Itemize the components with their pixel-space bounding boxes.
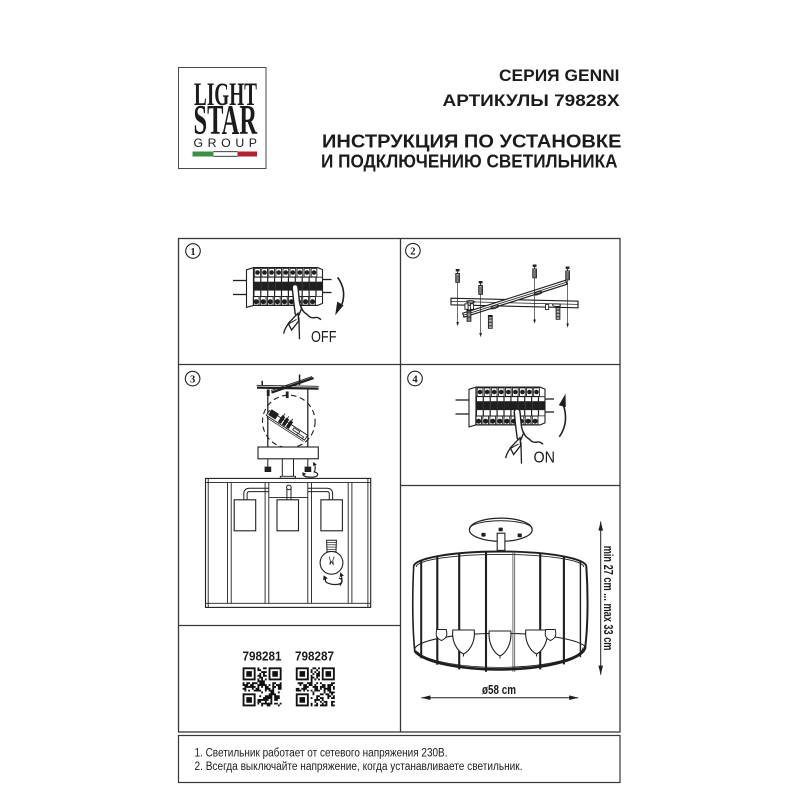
svg-text:СЕРИЯ GENNI: СЕРИЯ GENNI	[499, 66, 620, 85]
svg-text:OFF: OFF	[311, 329, 337, 346]
svg-text:ON: ON	[534, 450, 556, 467]
svg-text:1: 1	[190, 247, 195, 258]
svg-text:798281: 798281	[243, 648, 282, 663]
svg-text:min 27 cm ... max 33 cm: min 27 cm ... max 33 cm	[601, 546, 615, 651]
svg-text:4: 4	[412, 374, 418, 385]
svg-text:ø58 cm: ø58 cm	[482, 683, 516, 697]
svg-text:2: 2	[410, 247, 415, 258]
svg-text:798287: 798287	[295, 648, 334, 663]
svg-text:АРТИКУЛЫ 79828X: АРТИКУЛЫ 79828X	[443, 91, 621, 110]
svg-text:1. Светильник работает от сете: 1. Светильник работает от сетевого напря…	[195, 748, 448, 760]
svg-text:3: 3	[190, 374, 195, 385]
svg-text:2. Всегда выключайте напряжени: 2. Всегда выключайте напряжение, когда у…	[195, 761, 523, 773]
svg-text:И ПОДКЛЮЧЕНИЮ СВЕТИЛЬНИКА: И ПОДКЛЮЧЕНИЮ СВЕТИЛЬНИКА	[321, 151, 618, 171]
svg-text:ИНСТРУКЦИЯ ПО УСТАНОВКЕ: ИНСТРУКЦИЯ ПО УСТАНОВКЕ	[322, 132, 622, 152]
